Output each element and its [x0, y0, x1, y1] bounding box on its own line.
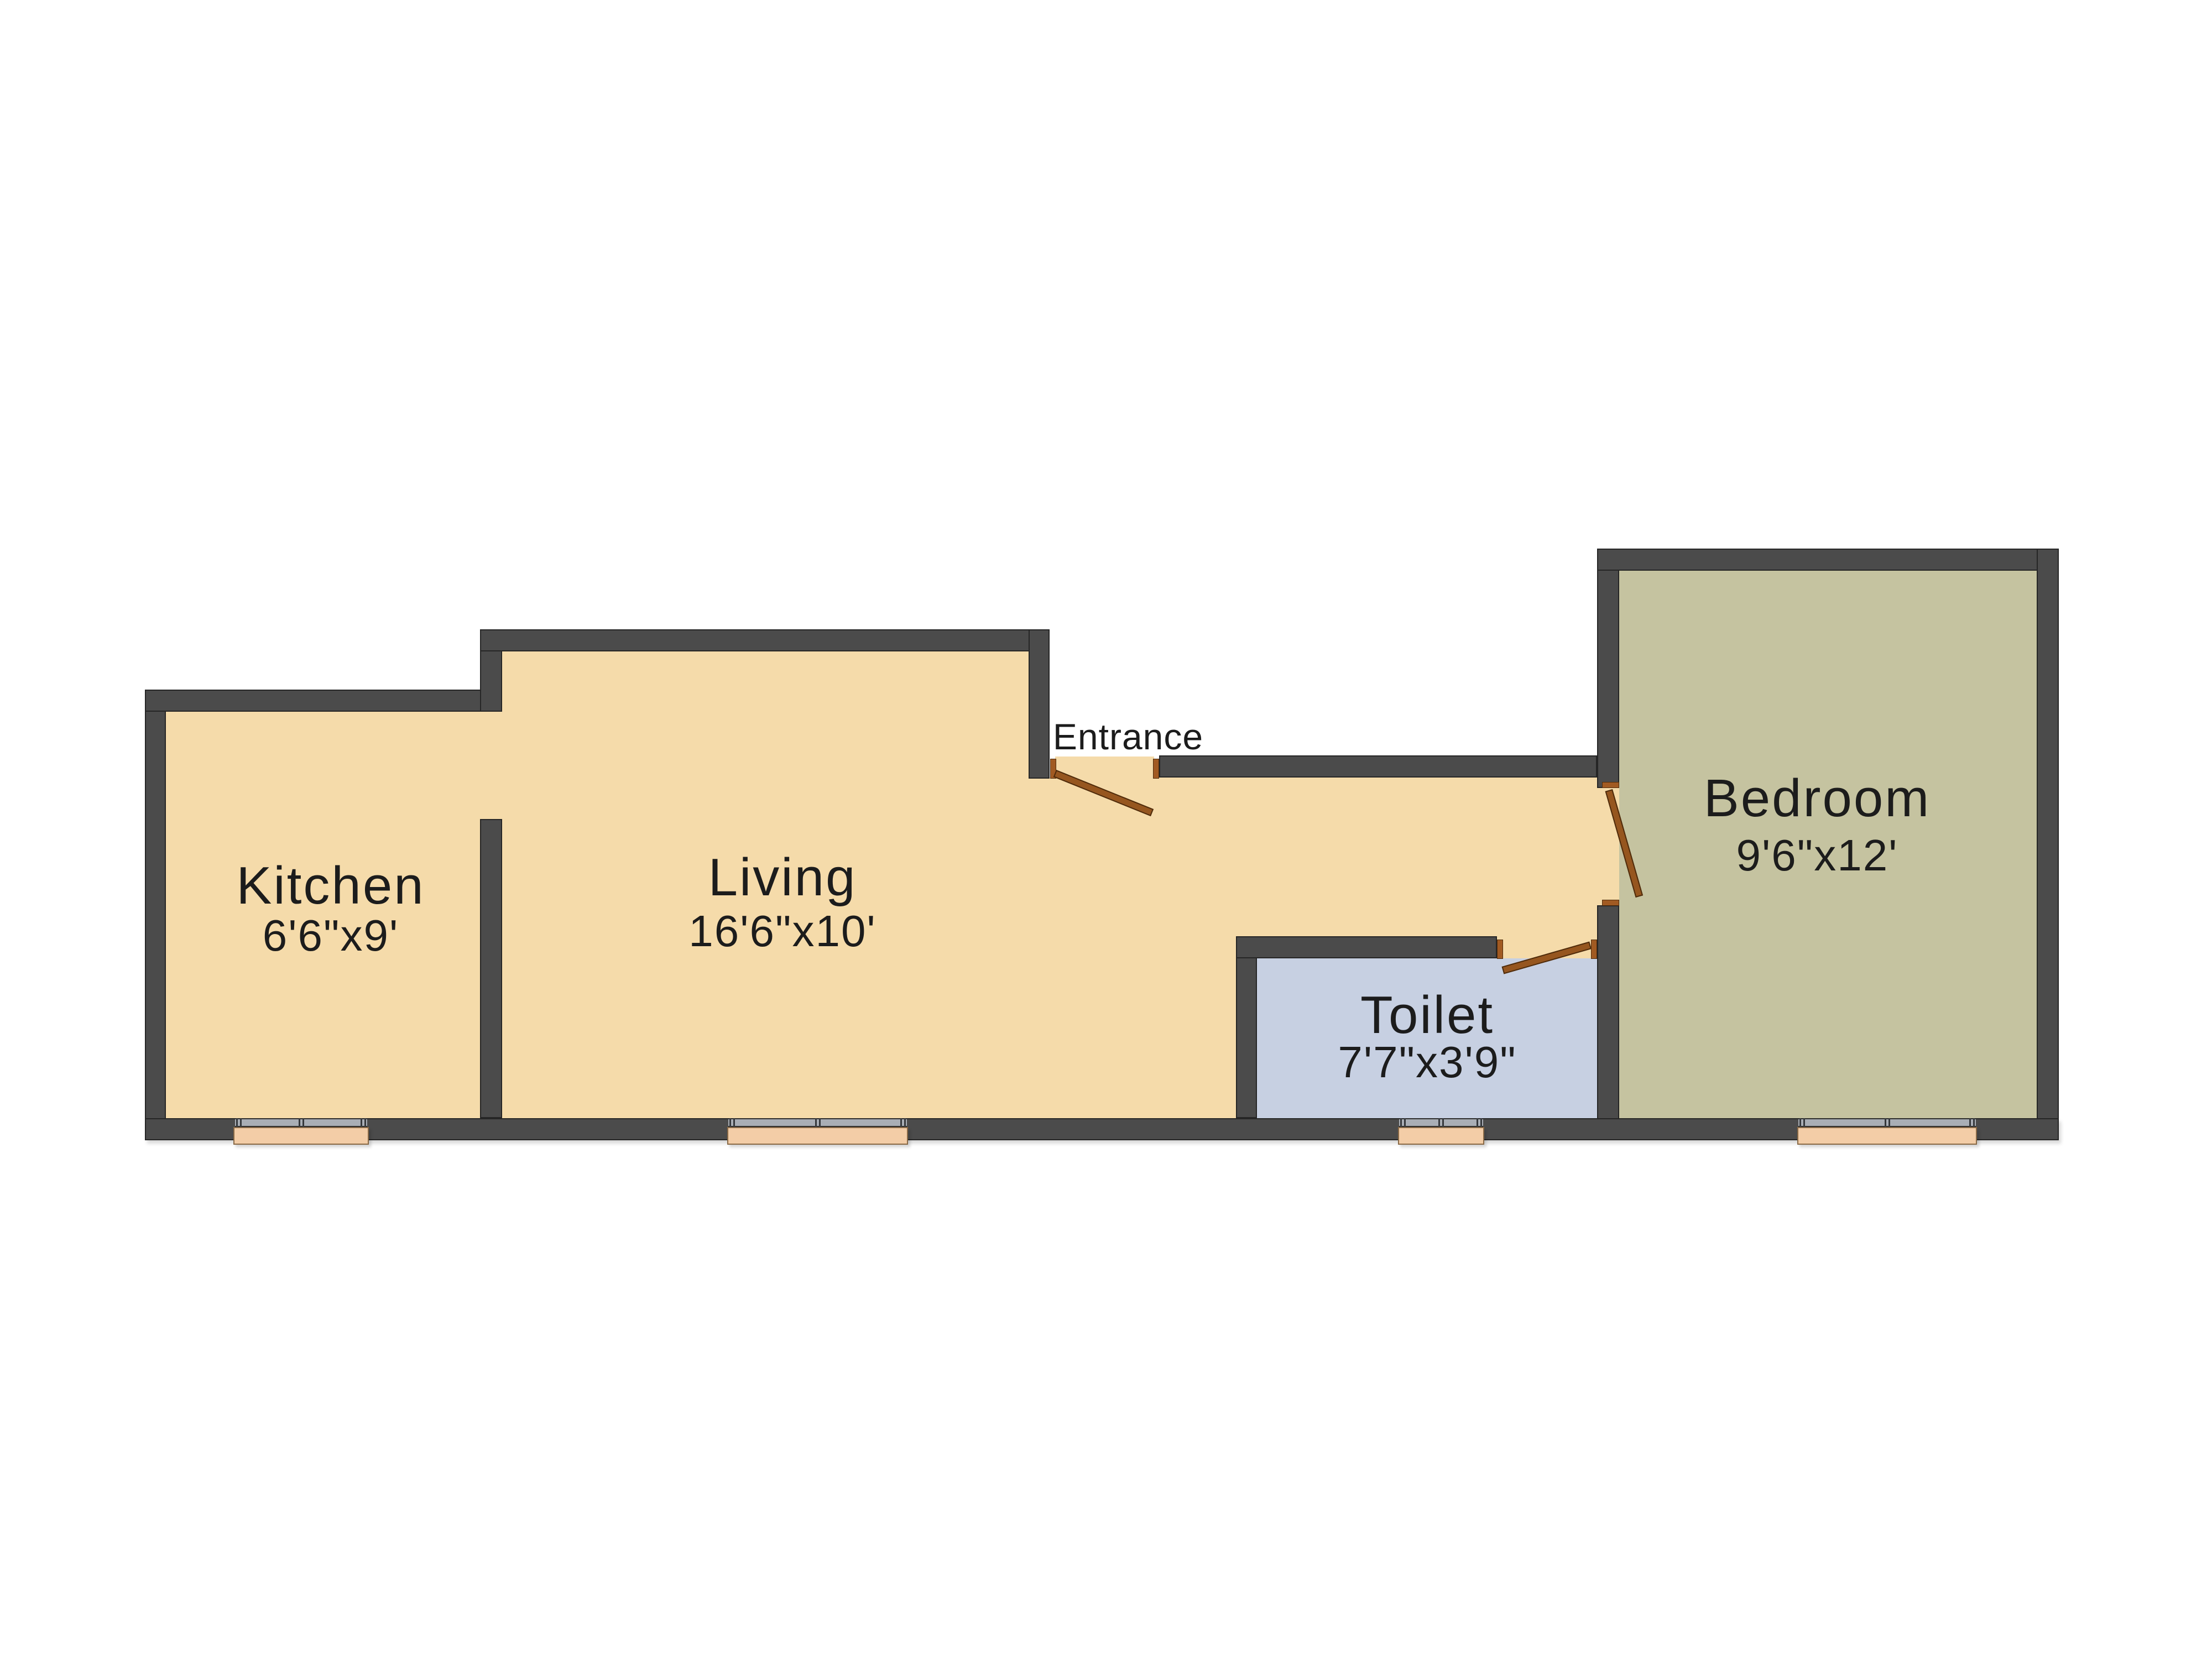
toilet-window-pane-divider-1	[1438, 1118, 1444, 1127]
bedroom-window-pane-divider-0	[1799, 1118, 1805, 1127]
toilet-door-right-jamb	[1591, 940, 1597, 959]
living-top-wall	[480, 629, 1050, 651]
bedroom-west-wall-lower	[1597, 905, 1619, 1140]
toilet-dims-label: 7'7"x3'9"	[1338, 1037, 1516, 1088]
kitchen-window-pane-divider-1	[299, 1118, 304, 1127]
bedroom-west-wall-upper	[1597, 549, 1619, 788]
bottom-wall	[145, 1118, 2059, 1140]
corridor-top-wall	[1159, 755, 1597, 778]
living-window-pane-divider-0	[729, 1118, 735, 1127]
toilet-window-pane-divider-0	[1400, 1118, 1406, 1127]
bedroom-right-wall	[2037, 549, 2059, 1140]
living-name-label: Living	[708, 847, 857, 908]
bedroom-window-pane-divider-2	[1969, 1118, 1975, 1127]
bedroom-window-sill	[1797, 1127, 1977, 1145]
bedroom-door-top-jamb	[1602, 782, 1619, 788]
living-right-wall	[1029, 629, 1050, 779]
entrance-label: Entrance	[1053, 716, 1203, 758]
kitchen-left-wall	[145, 690, 166, 1140]
entrance-right-jamb	[1153, 759, 1159, 779]
floor-plan: Kitchen 6'6"x9' Living 16'6"x10' Toilet …	[0, 0, 2212, 1659]
bedroom-door-bottom-jamb	[1602, 900, 1619, 906]
toilet-left-wall	[1236, 936, 1257, 1118]
bedroom-dims-label: 9'6"x12'	[1736, 830, 1898, 881]
kitchen-window-pane-divider-2	[361, 1118, 366, 1127]
toilet-window-sill	[1398, 1127, 1484, 1145]
living-window-sill	[727, 1127, 908, 1145]
kitchen-living-passage	[480, 712, 502, 819]
kitchen-top-wall	[145, 690, 502, 712]
bedroom-top-wall	[1597, 549, 2059, 571]
entrance-passage	[1055, 757, 1154, 778]
kitchen-name-label: Kitchen	[236, 855, 425, 916]
bedroom-name-label: Bedroom	[1704, 768, 1931, 829]
living-window-pane-divider-2	[900, 1118, 906, 1127]
toilet-top-wall	[1236, 936, 1497, 958]
living-dims-label: 16'6"x10'	[688, 906, 876, 957]
toilet-door-left-jamb	[1497, 940, 1503, 959]
toilet-window-pane-divider-2	[1477, 1118, 1482, 1127]
living-window-pane-divider-1	[815, 1118, 821, 1127]
kitchen-living-divider	[480, 819, 502, 1118]
kitchen-window-sill	[233, 1127, 369, 1145]
kitchen-window-pane-divider-0	[236, 1118, 242, 1127]
kitchen-dims-label: 6'6"x9'	[263, 910, 399, 961]
bedroom-window-pane-divider-1	[1885, 1118, 1890, 1127]
